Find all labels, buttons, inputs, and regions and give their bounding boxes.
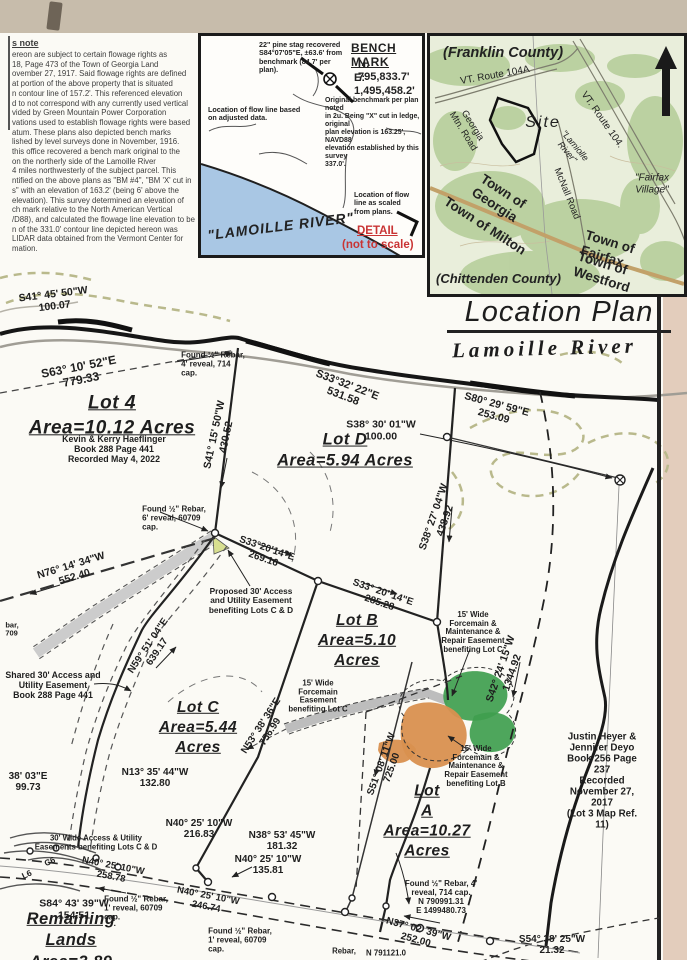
- bearing-s54-38-25: S54° 38' 25"W 21.32: [519, 934, 585, 956]
- bearing-n40-25-10-b: N40° 25' 10"W 135.81: [235, 854, 302, 876]
- found-rebar-coordinates-note: Found ½" Rebar, 4' reveal, 714 cap. N 79…: [405, 880, 477, 916]
- fairfax-village-label: "Fairfax Village": [635, 173, 669, 196]
- lot-c-title: Lot C Area=5.44 Acres: [159, 698, 237, 758]
- pine-stag-note: 22" pine stag recovered S84°07'05"E, ±63…: [259, 41, 342, 74]
- flow-line-adjusted-note: Location of flow line based on adjusted …: [208, 106, 300, 123]
- location-plan-inset: (Franklin County) VT. Route 104A Georgia…: [427, 33, 687, 297]
- lot-4-owner-note: Kevin & Kerry Haeflinger Book 288 Page 4…: [62, 435, 166, 465]
- notes-body: ereon are subject to certain flowage rig…: [12, 50, 202, 254]
- detail-label: DETAIL: [357, 225, 398, 238]
- wide-access-easement-note: 30' Wide Access & Utility Easements bene…: [35, 834, 158, 851]
- remaining-lands-title: Remaining Lands Area=3.89: [27, 909, 116, 960]
- lot-a-title: Lot A Area=10.27 Acres: [383, 782, 470, 863]
- benchmark-detail-inset: 22" pine stag recovered S84°07'05"E, ±63…: [198, 33, 425, 258]
- found-rebar-note-bottom: Found ½" Rebar, 1' reveal, 60709 cap.: [208, 928, 272, 955]
- shared-access-easement-note: Shared 30' Access and Utility Easement B…: [5, 671, 100, 701]
- bearing-edge-38-03: 38' 03"E 99.73: [9, 771, 48, 793]
- fragment-coordinate-bottom: N 791121.0: [366, 950, 406, 959]
- county-label-chittenden: (Chittenden County): [436, 272, 561, 287]
- original-benchmark-note: Original benchmark per plan noted in 2u.…: [325, 97, 422, 168]
- heyer-deyo-owner-note: Justin Heyer & Jennifer Deyo Book 256 Pa…: [560, 733, 645, 832]
- site-label: Site: [525, 114, 561, 132]
- found-rebar-note-714-top: Found ½" Rebar, 4' reveal, 714 cap.: [181, 352, 245, 379]
- forcemain-repair-easement-lot-c-note: 15' Wide Forcemain & Maintenance & Repai…: [441, 611, 504, 655]
- lot-b-title: Lot B Area=5.10 Acres: [318, 611, 396, 671]
- proposed-access-easement-note: Proposed 30' Access and Utility Easement…: [209, 587, 293, 615]
- found-rebar-note-60709-mid: Found ½" Rebar, 6' reveal, 60709 cap.: [142, 506, 206, 533]
- forcemain-repair-easement-lot-b-note: 15' Wide Forcemain & Maintenance & Repai…: [444, 745, 507, 789]
- benchmark-easting: E: 1,495,458.2': [354, 72, 422, 97]
- lamoille-river-title: Lamoille River: [452, 334, 637, 364]
- edge-fragment-rebar: bar, 709: [5, 622, 18, 639]
- not-to-scale-label: (not to scale): [342, 239, 414, 252]
- bearing-s38-30-01: S38° 30' 01"W 100.00: [346, 419, 415, 443]
- forcemain-easement-lot-c-note: 15' Wide Forcemain Easement benefiting L…: [288, 680, 347, 715]
- survey-plat-page: s note ereon are subject to certain flow…: [0, 0, 687, 960]
- bearing-n40-25-10-a: N40° 25' 10"W 216.83: [166, 818, 233, 840]
- flowage-rights-notes: s note ereon are subject to certain flow…: [12, 38, 202, 254]
- fragment-rebar-bottom: Rebar,: [332, 948, 356, 957]
- flow-line-scaled-note: Location of flow line as scaled from pla…: [354, 191, 409, 216]
- notes-title: s note: [12, 38, 202, 48]
- bearing-n13-35-44: N13° 35' 44"W 132.80: [122, 767, 189, 789]
- location-plan-title: Location Plan: [447, 296, 671, 333]
- bearing-n38-53-45: N38° 53' 45"W 181.32: [249, 830, 316, 852]
- county-label-franklin: (Franklin County): [443, 45, 563, 62]
